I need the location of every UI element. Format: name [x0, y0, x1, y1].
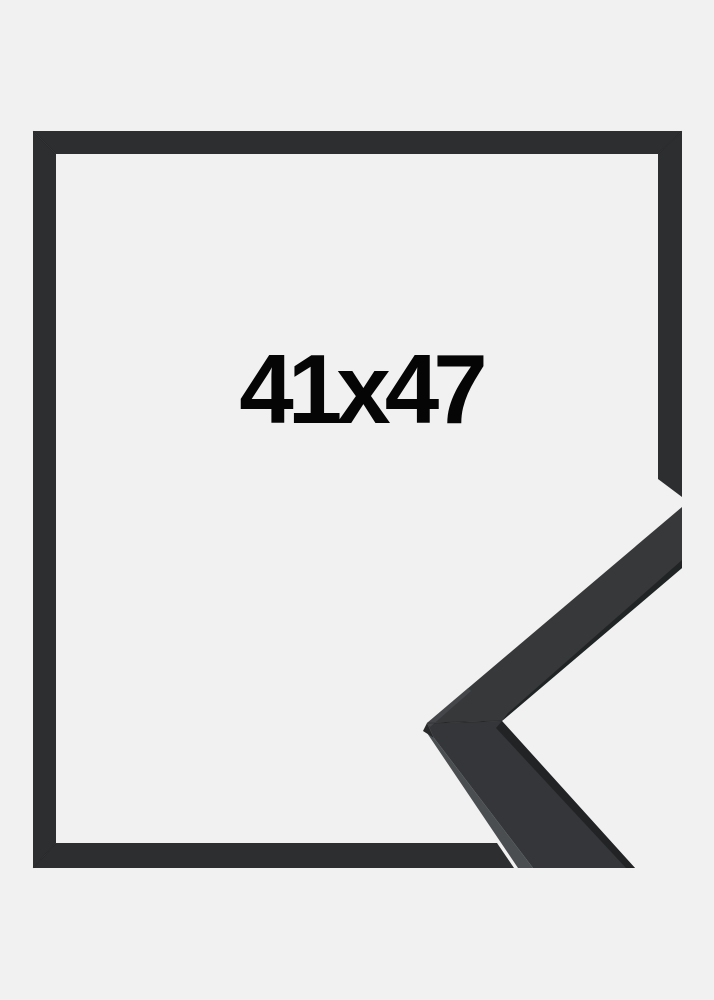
product-image: 41x47	[0, 0, 714, 1000]
frame-left-bar	[33, 131, 56, 868]
frame-bottom-bar	[33, 843, 514, 868]
frame-graphic	[0, 0, 714, 1000]
size-label: 41x47	[237, 337, 484, 441]
frame-right-bar	[658, 131, 682, 497]
frame-top-bar	[33, 131, 682, 154]
